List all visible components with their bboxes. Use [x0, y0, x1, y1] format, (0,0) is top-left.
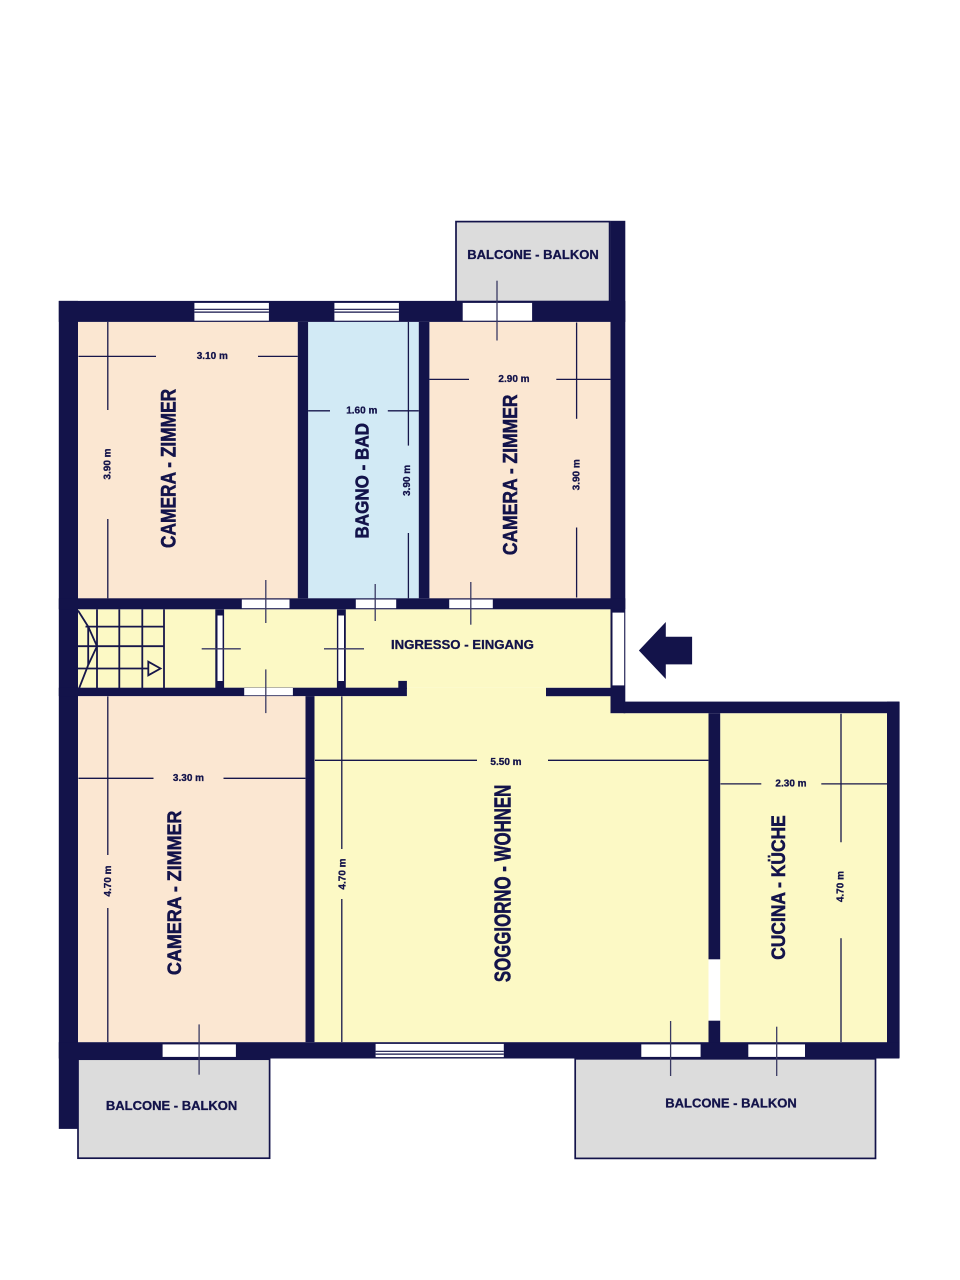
svg-text:4.70 m: 4.70 m [338, 858, 349, 889]
svg-text:INGRESSO - EINGANG: INGRESSO - EINGANG [391, 637, 534, 652]
svg-text:BALCONE - BALKON: BALCONE - BALKON [467, 247, 598, 262]
svg-text:CAMERA - ZIMMER: CAMERA - ZIMMER [158, 389, 181, 548]
svg-text:3.30 m: 3.30 m [173, 773, 204, 784]
svg-text:4.70 m: 4.70 m [103, 865, 114, 896]
svg-text:3.10 m: 3.10 m [197, 351, 228, 362]
svg-text:CAMERA - ZIMMER: CAMERA - ZIMMER [500, 394, 522, 555]
svg-text:BALCONE - BALKON: BALCONE - BALKON [665, 1096, 796, 1111]
svg-text:2.30 m: 2.30 m [775, 778, 806, 789]
svg-text:BALCONE - BALKON: BALCONE - BALKON [106, 1098, 237, 1113]
svg-text:SOGGIORNO - WOHNEN: SOGGIORNO - WOHNEN [490, 785, 516, 982]
svg-text:2.90 m: 2.90 m [498, 374, 529, 385]
svg-text:5.50 m: 5.50 m [490, 757, 521, 768]
svg-text:3.90 m: 3.90 m [572, 459, 583, 490]
svg-text:3.90 m: 3.90 m [102, 448, 113, 479]
svg-text:1.60 m: 1.60 m [346, 405, 377, 416]
svg-text:4.70 m: 4.70 m [836, 871, 847, 902]
svg-text:BAGNO - BAD: BAGNO - BAD [352, 423, 373, 539]
svg-text:CUCINA - KÜCHE: CUCINA - KÜCHE [767, 815, 789, 960]
svg-text:3.90 m: 3.90 m [402, 465, 413, 496]
svg-text:CAMERA - ZIMMER: CAMERA - ZIMMER [163, 810, 185, 975]
